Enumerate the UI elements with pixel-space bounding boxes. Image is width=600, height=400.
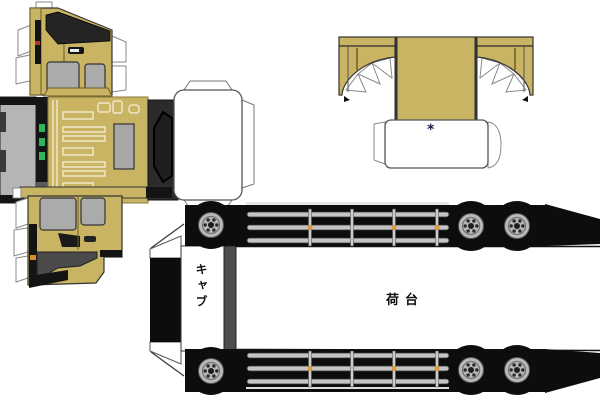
front-window (40, 198, 76, 230)
base-left-tab (374, 122, 385, 164)
rear-panel-top-band (0, 97, 36, 105)
amber-marker (435, 225, 440, 230)
cut-arrow (522, 96, 528, 102)
front-bumper-face (150, 258, 181, 342)
template-drawing (0, 0, 600, 400)
top-fold-flap (44, 88, 112, 96)
glue-tabs (14, 198, 28, 282)
amber-marker (392, 366, 397, 371)
side-black-band (100, 250, 122, 257)
rear-wheel-bottom-outer (451, 350, 491, 390)
frame-band-bottom-taper (545, 349, 600, 393)
cab-label: キャブ (193, 263, 210, 349)
rear-window (81, 198, 105, 225)
deflector-right-wing (477, 46, 533, 102)
papercraft-sheet: キャブ 荷台 * (0, 0, 600, 400)
roofline-strip-black-end (146, 187, 172, 198)
front-wheel-bottom (191, 351, 231, 391)
base-right-tab (488, 122, 501, 168)
frame-rails-top (247, 209, 449, 246)
roof-panel (174, 90, 242, 200)
rear-hinge-upper (0, 112, 6, 132)
amber-marker (435, 366, 440, 371)
amber-marker-light (30, 255, 36, 260)
cab-bed-divider-bar (224, 246, 236, 351)
roofline-strip-tab (13, 188, 21, 198)
green-marker-light-1 (39, 124, 45, 132)
front-upper-tab (150, 236, 181, 258)
front-wheel-top (191, 205, 231, 245)
rear-wheel-top-inner (497, 206, 537, 246)
center-hatch-panel (114, 124, 134, 169)
rear-wheel-bottom-inner (497, 350, 537, 390)
front-lower-tab (150, 342, 181, 364)
green-marker-light-3 (39, 152, 45, 160)
deflector-left-wing (339, 46, 395, 102)
rear-wheel-top-outer (451, 206, 491, 246)
cut-arrow (344, 96, 350, 102)
bed-bottom-edge (236, 350, 600, 351)
amber-marker (308, 225, 313, 230)
door-handle-grip (70, 49, 79, 52)
roof-mark-label: * (427, 122, 434, 138)
door-handle (84, 236, 96, 242)
green-marker-light-2 (39, 138, 45, 146)
red-marker-light (35, 41, 40, 45)
amber-marker (392, 225, 397, 230)
deflector-center-column (395, 37, 477, 121)
amber-marker (308, 366, 313, 371)
cab-side-panel-right-piece (16, 2, 126, 95)
roof-top-tab (184, 81, 232, 90)
roof-wind-deflector-piece (339, 37, 533, 168)
rear-hinge-lower (0, 150, 6, 172)
windshield-glass-hex (154, 112, 172, 182)
deflector-base-box (385, 120, 488, 168)
frame-rails-bottom (247, 351, 449, 387)
roof-right-tab (242, 100, 254, 188)
cargo-bed-label: 荷台 (363, 289, 447, 308)
frame-band-top-taper (545, 204, 600, 246)
